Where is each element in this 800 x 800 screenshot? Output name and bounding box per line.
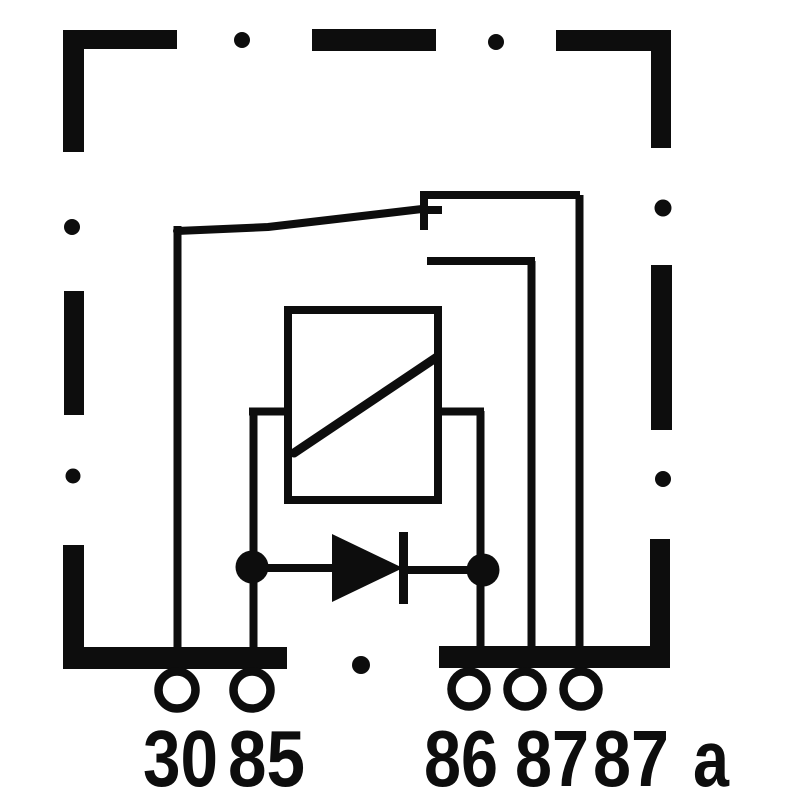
svg-text:85: 85	[228, 714, 305, 800]
svg-text:a: a	[693, 714, 729, 800]
svg-text:87: 87	[593, 714, 669, 800]
svg-text:86: 86	[424, 714, 498, 800]
svg-text:30: 30	[143, 714, 218, 800]
svg-text:87: 87	[515, 714, 589, 800]
